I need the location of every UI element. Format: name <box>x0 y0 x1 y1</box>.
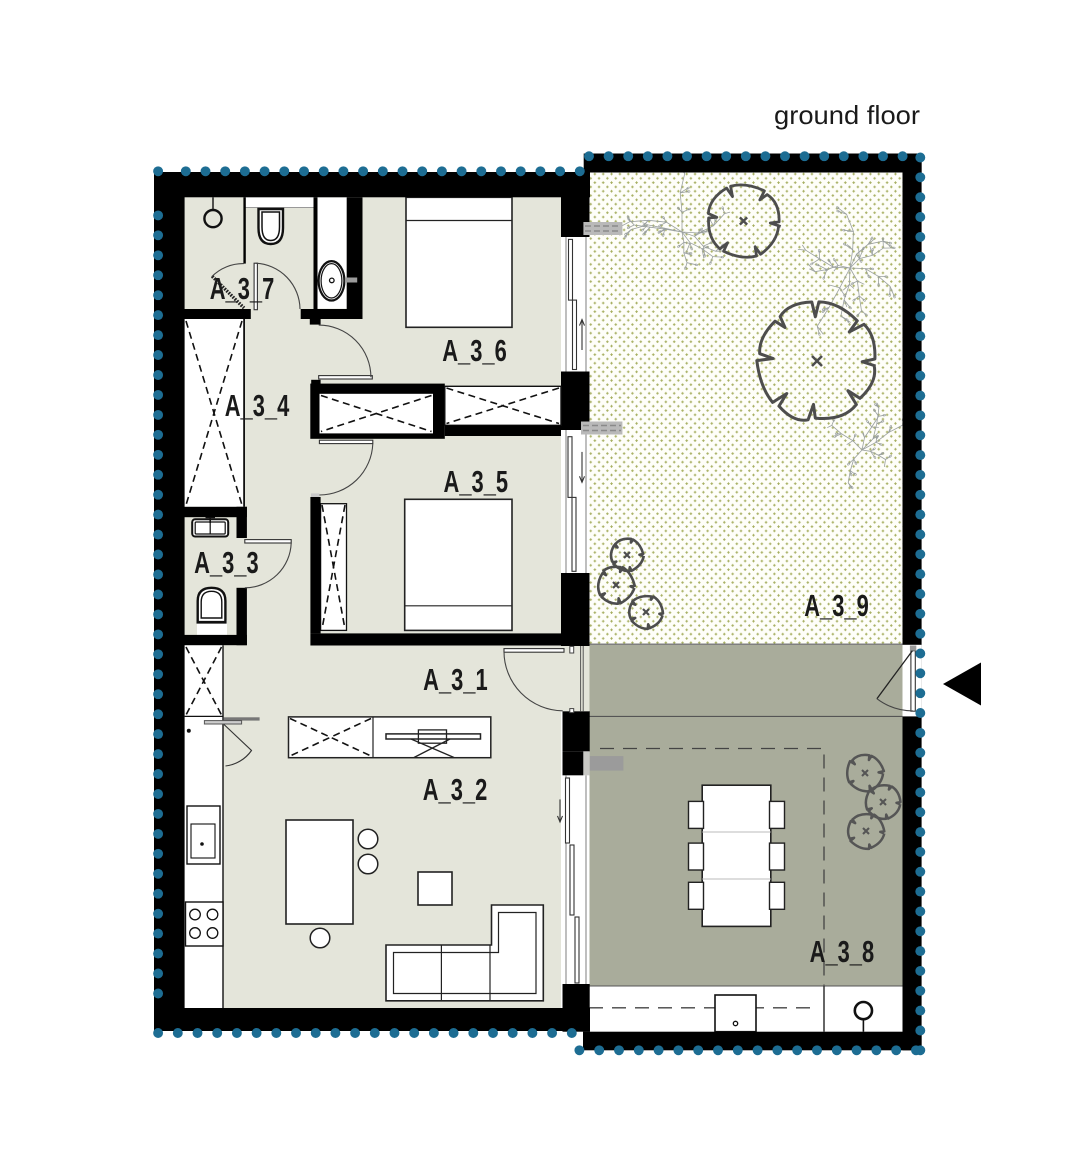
svg-text:ground floor: ground floor <box>774 100 920 130</box>
svg-text:A_3_8: A_3_8 <box>810 934 875 969</box>
svg-text:A_3_2: A_3_2 <box>423 772 488 807</box>
svg-text:A_3_9: A_3_9 <box>804 588 869 623</box>
svg-text:A_3_4: A_3_4 <box>225 388 290 423</box>
svg-text:A_3_1: A_3_1 <box>423 662 488 697</box>
svg-text:A_3_7: A_3_7 <box>210 271 275 306</box>
svg-text:A_3_3: A_3_3 <box>194 545 259 580</box>
svg-text:A_3_5: A_3_5 <box>444 464 509 499</box>
svg-text:A_3_6: A_3_6 <box>442 333 507 368</box>
